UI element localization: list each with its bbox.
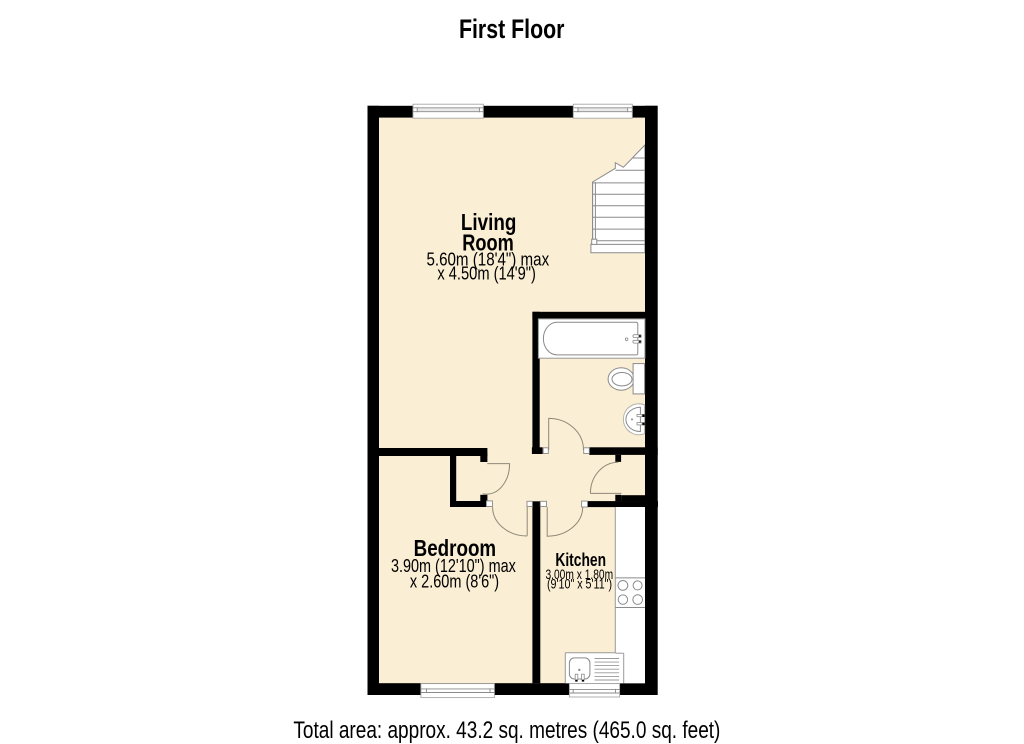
svg-text:Total area: approx. 43.2 sq. m: Total area: approx. 43.2 sq. metres (465… [293,716,720,744]
svg-text:(9'10" x 5'11"): (9'10" x 5'11") [547,576,612,592]
svg-text:First Floor: First Floor [459,15,564,45]
svg-text:x 2.60m (8'6"): x 2.60m (8'6") [410,572,499,592]
svg-text:x 4.50m (14'9"): x 4.50m (14'9") [437,264,536,284]
